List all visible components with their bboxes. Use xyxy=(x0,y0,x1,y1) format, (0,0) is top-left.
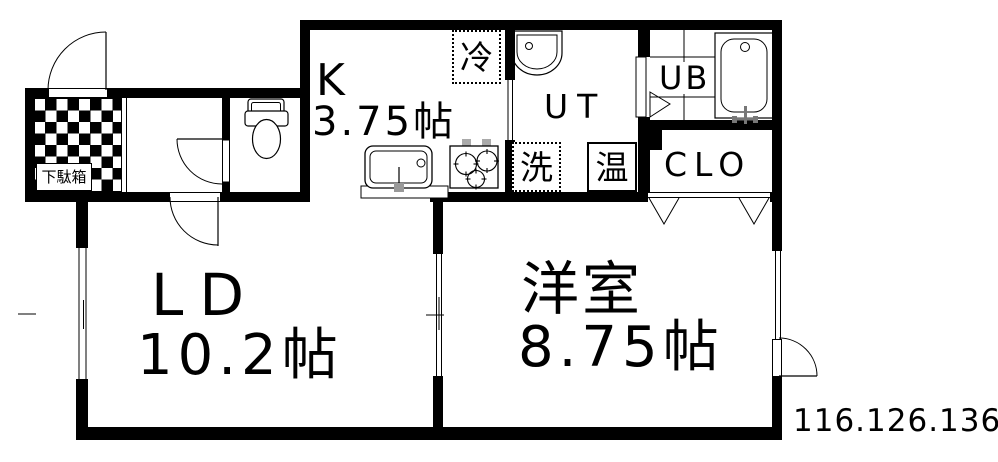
kitchen-sink-icon xyxy=(361,146,448,198)
stove-icon xyxy=(450,139,499,190)
washing-machine-box: 洗 xyxy=(512,142,561,192)
closet-folding-door-icon xyxy=(648,193,770,225)
floor-plan: 下駄箱 冷 洗 温 K 3.75帖 LD 10.2帖 洋室 8.75帖 UT U… xyxy=(0,0,998,462)
balcony-door-icon xyxy=(772,338,817,377)
western-room-label: 洋室 xyxy=(521,260,643,318)
watermark-number: 116.126.136 xyxy=(793,406,998,437)
water-heater-box: 温 xyxy=(587,142,637,192)
utility-label: UT xyxy=(544,90,606,123)
toilet-icon xyxy=(245,99,288,159)
sliding-partition-icon xyxy=(426,254,444,376)
window-icon-ld-left xyxy=(18,248,86,379)
unit-bath-label: UB xyxy=(656,62,713,94)
washing-machine-label: 洗 xyxy=(520,151,553,184)
refrigerator-label: 冷 xyxy=(460,41,493,74)
refrigerator-box: 冷 xyxy=(452,30,501,84)
western-room-area-label: 8.75帖 xyxy=(518,320,724,376)
window-icon-west-right xyxy=(776,251,781,339)
water-heater-label: 温 xyxy=(596,151,629,184)
living-door-icon xyxy=(170,193,221,247)
washbasin-icon xyxy=(512,31,562,75)
sliding-door-icon-kitchen xyxy=(508,80,513,140)
toilet-door-icon xyxy=(177,139,230,184)
kitchen-label: K xyxy=(316,59,345,103)
entrance-door-icon xyxy=(48,32,108,98)
shoe-cabinet-label: 下駄箱 xyxy=(41,170,86,185)
kitchen-area-label: 3.75帖 xyxy=(312,102,456,142)
closet-label: CLO xyxy=(664,148,751,181)
bathtub-icon xyxy=(715,33,773,124)
living-dining-label: LD xyxy=(151,266,260,324)
shoe-cabinet-box: 下駄箱 xyxy=(36,163,92,191)
living-dining-area-label: 10.2帖 xyxy=(137,328,343,384)
